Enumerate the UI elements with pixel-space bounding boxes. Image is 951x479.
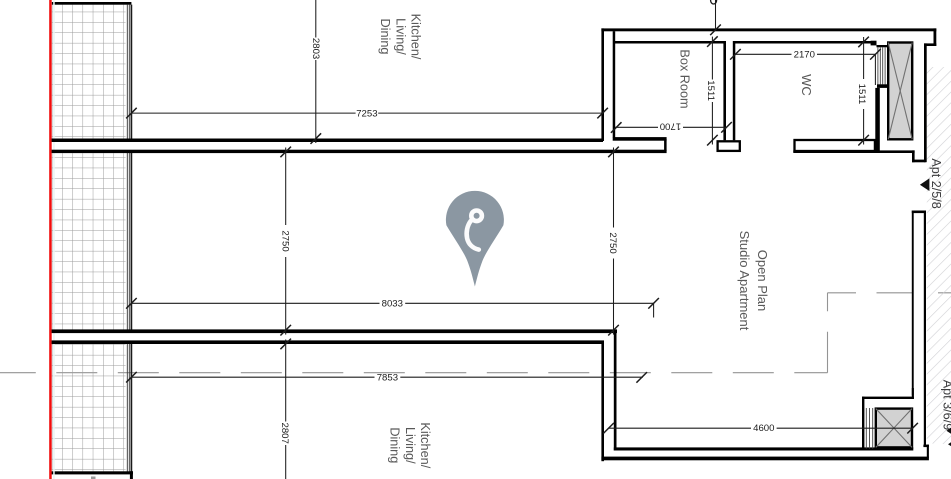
svg-text:7253: 7253	[356, 108, 377, 119]
svg-text:2170: 2170	[794, 50, 815, 61]
svg-text:2750: 2750	[279, 230, 290, 251]
svg-text:2803: 2803	[310, 38, 321, 59]
svg-text:Box Room: Box Room	[677, 49, 691, 108]
svg-text:2750: 2750	[607, 232, 618, 253]
svg-text:1511: 1511	[856, 84, 867, 105]
svg-text:8033: 8033	[382, 299, 403, 310]
svg-text:2807: 2807	[279, 423, 290, 444]
svg-text:1511: 1511	[705, 80, 716, 101]
svg-text:Kitchen/Living/Dining: Kitchen/Living/Dining	[378, 14, 423, 60]
svg-text:WC: WC	[799, 74, 814, 96]
svg-text:Apt 2/5/8: Apt 2/5/8	[929, 158, 943, 208]
svg-text:7853: 7853	[377, 372, 398, 383]
svg-text:Kitchen/Living/Dining: Kitchen/Living/Dining	[387, 422, 432, 468]
svg-text:Apt 3/6/9: Apt 3/6/9	[941, 380, 951, 430]
svg-text:4600: 4600	[753, 423, 774, 434]
svg-text:1700: 1700	[660, 120, 681, 131]
